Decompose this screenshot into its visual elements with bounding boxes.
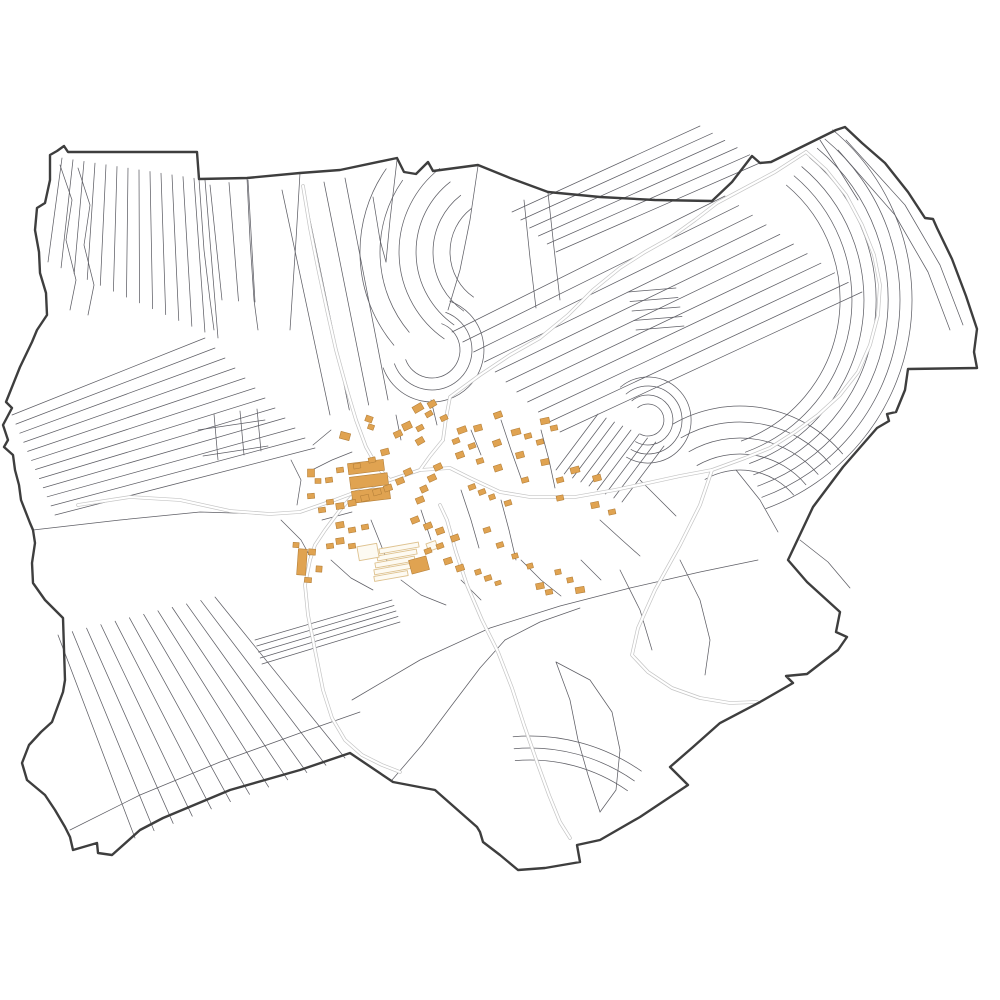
building (336, 537, 345, 544)
building (336, 502, 345, 509)
building (315, 479, 321, 484)
building (326, 499, 334, 505)
building (368, 457, 376, 463)
building (545, 589, 553, 595)
building (336, 467, 344, 473)
building (535, 582, 544, 590)
building (590, 501, 599, 509)
building (348, 527, 356, 533)
building (326, 543, 334, 549)
building (353, 463, 361, 469)
building (293, 542, 299, 547)
building (348, 499, 357, 506)
building (608, 509, 616, 515)
building (360, 494, 369, 502)
building (575, 586, 585, 593)
building (325, 477, 333, 483)
building (555, 569, 562, 575)
cadastral-map-page (0, 0, 1000, 1000)
building-outline (357, 543, 379, 560)
building (308, 469, 315, 477)
building (318, 507, 326, 513)
building (540, 458, 549, 466)
building (304, 577, 311, 582)
building (348, 543, 356, 549)
building (567, 577, 574, 583)
building (297, 549, 308, 576)
building (556, 495, 564, 501)
cadastral-map (0, 0, 1000, 1000)
building (308, 549, 315, 555)
building (361, 524, 369, 530)
building (307, 493, 314, 499)
building (336, 521, 345, 528)
building (526, 563, 533, 569)
building (550, 425, 558, 431)
building (511, 553, 518, 559)
building (316, 566, 322, 572)
